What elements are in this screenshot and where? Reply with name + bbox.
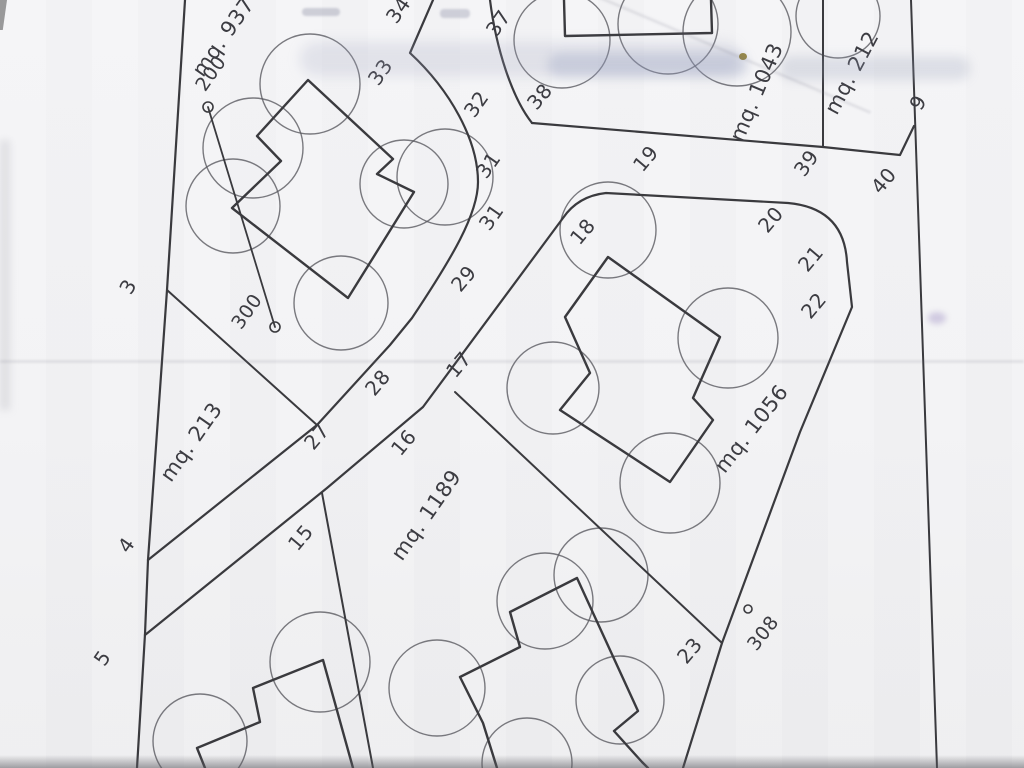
tree-circle — [203, 98, 303, 198]
tree-circle — [514, 0, 610, 88]
boundary-point-number: 39 — [789, 145, 824, 180]
tree-circle — [294, 256, 388, 350]
boundary-point-number: 3 — [114, 275, 141, 298]
boundary-point-number: 16 — [386, 425, 421, 461]
boundary-point-number: 37 — [481, 5, 516, 40]
house-bottom-center — [460, 578, 648, 768]
parcel-1056-boundary — [145, 193, 852, 768]
boundary-point-number: 40 — [866, 163, 901, 199]
house-parcel-937 — [232, 80, 414, 298]
outer-boundary-west — [137, 0, 185, 768]
boundary-point-number: 19 — [628, 141, 663, 177]
survey-baseline-200-300 — [208, 107, 275, 327]
tree-circle — [678, 288, 778, 388]
boundary-point-number: 5 — [89, 646, 116, 671]
tree-circle — [618, 0, 718, 74]
parcel-area-label: mq. 212 — [820, 27, 884, 118]
tree-circle — [260, 34, 360, 134]
boundary-point-number: 31 — [474, 199, 509, 234]
parcel-area-label: mq. 1043 — [725, 39, 788, 145]
parcel-area-label: mq. 1056 — [710, 380, 793, 477]
boundary-point-number: 20 — [753, 202, 788, 238]
tree-circle — [497, 553, 593, 649]
boundary-point-number: 23 — [672, 633, 707, 669]
boundary-point-number: 15 — [283, 520, 318, 556]
east-road-north-edge — [532, 123, 914, 155]
boundary-point-number: 29 — [446, 261, 481, 297]
tree-circle — [554, 528, 648, 622]
survey-point-label: 308 — [743, 612, 784, 655]
survey-point-marker-308 — [744, 605, 752, 613]
house-parcel-1056 — [560, 257, 720, 482]
parcel-area-label: mq. 1189 — [386, 465, 466, 564]
outer-boundary-east — [911, 0, 937, 768]
boundary-point-number: 27 — [299, 419, 334, 455]
boundary-point-number: 9 — [904, 91, 931, 114]
boundary-point-number: 4 — [113, 533, 140, 558]
parcel-area-label: mq. 213 — [155, 398, 227, 486]
boundary-point-number: 22 — [796, 288, 831, 324]
boundary-point-number: 33 — [363, 54, 398, 89]
tree-circle — [507, 342, 599, 434]
divider-15-1189 — [322, 493, 373, 768]
boundary-point-number: 31 — [471, 147, 506, 182]
boundary-point-number: 34 — [381, 0, 416, 28]
house-bottom-left — [197, 660, 353, 768]
boundary-point-number: 28 — [360, 365, 395, 401]
tree-circle — [389, 640, 485, 736]
site-plan-svg: mq. 937mq. 1043mq. 212mq. 213mq. 1189mq.… — [0, 0, 1024, 768]
boundary-point-number: 21 — [793, 241, 828, 277]
boundary-point-number: 32 — [459, 86, 494, 121]
survey-point-label: 300 — [227, 290, 267, 334]
scanned-plan-page: mq. 937mq. 1043mq. 212mq. 213mq. 1189mq.… — [0, 0, 1024, 768]
boundary-point-number: 38 — [522, 79, 557, 115]
boundary-point-number: 18 — [565, 214, 600, 250]
